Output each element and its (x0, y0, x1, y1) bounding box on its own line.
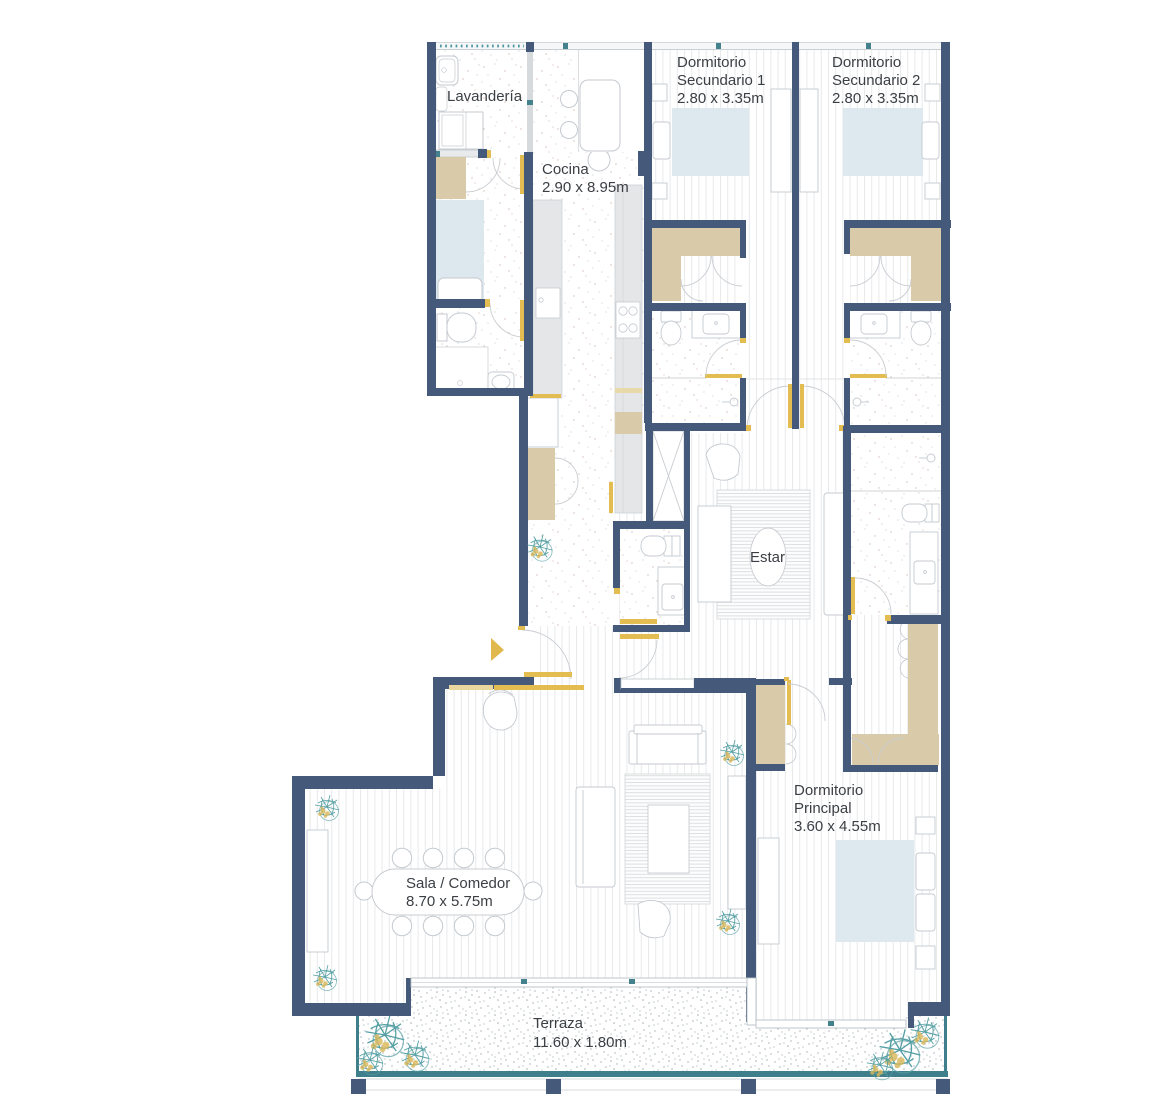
svg-text:11.60 x 1.80m: 11.60 x 1.80m (533, 1034, 627, 1051)
svg-text:2.90 x 8.95m: 2.90 x 8.95m (542, 179, 629, 196)
svg-text:Cocina: Cocina (542, 161, 589, 178)
svg-text:8.70 x 5.75m: 8.70 x 5.75m (406, 893, 493, 910)
svg-text:Dormitorio: Dormitorio (794, 782, 863, 799)
svg-text:Estar: Estar (750, 549, 785, 566)
svg-text:Principal: Principal (794, 800, 852, 817)
svg-text:Lavandería: Lavandería (447, 88, 523, 105)
svg-text:Secundario 2: Secundario 2 (832, 72, 920, 89)
svg-text:3.60 x 4.55m: 3.60 x 4.55m (794, 818, 881, 835)
svg-text:Dormitorio: Dormitorio (832, 54, 901, 71)
svg-text:2.80 x 3.35m: 2.80 x 3.35m (832, 90, 919, 107)
svg-text:2.80 x 3.35m: 2.80 x 3.35m (677, 90, 764, 107)
svg-text:Terraza: Terraza (533, 1015, 584, 1032)
svg-text:Sala / Comedor: Sala / Comedor (406, 875, 510, 892)
svg-text:Dormitorio: Dormitorio (677, 54, 746, 71)
svg-text:Secundario 1: Secundario 1 (677, 72, 765, 89)
